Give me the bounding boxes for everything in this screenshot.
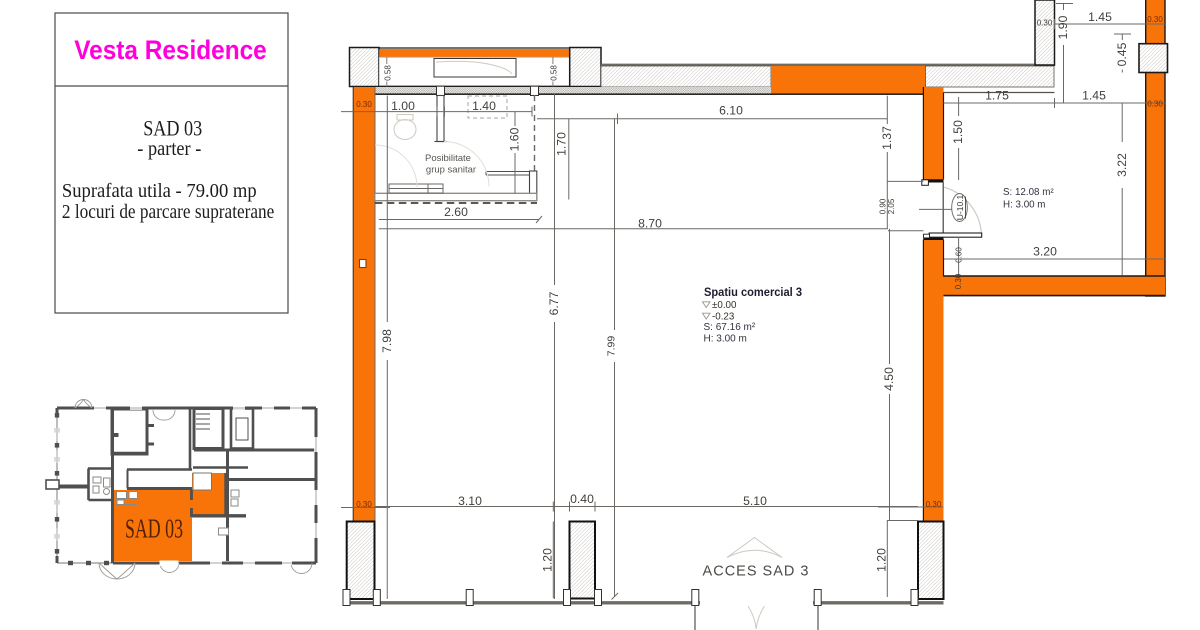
svg-text:2 locuri de parcare suprateran: 2 locuri de parcare supraterane <box>62 202 274 223</box>
svg-text:1.20: 1.20 <box>874 548 888 572</box>
svg-text:-0.23: -0.23 <box>712 311 735 322</box>
svg-text:SAD 03: SAD 03 <box>125 514 183 544</box>
svg-text:Spatiu comercial 3: Spatiu comercial 3 <box>704 287 802 299</box>
svg-text:0.58: 0.58 <box>384 65 393 81</box>
svg-text:U-10.1: U-10.1 <box>955 194 965 220</box>
svg-text:6.77: 6.77 <box>547 291 561 315</box>
svg-text:1.60: 1.60 <box>508 127 522 151</box>
svg-text:7.99: 7.99 <box>606 336 618 357</box>
svg-text:6.10: 6.10 <box>719 104 743 118</box>
svg-text:0.45: 0.45 <box>1115 42 1129 66</box>
svg-text:1.45: 1.45 <box>1088 10 1112 24</box>
svg-text:1.90: 1.90 <box>1056 15 1070 39</box>
svg-text:1.37: 1.37 <box>880 126 894 150</box>
svg-text:1.40: 1.40 <box>472 99 496 113</box>
svg-text:0.30: 0.30 <box>1147 15 1163 24</box>
svg-text:Vesta Residence: Vesta Residence <box>74 35 267 65</box>
svg-text:7.98: 7.98 <box>380 329 394 353</box>
svg-text:3.22: 3.22 <box>1115 153 1129 177</box>
svg-text:Suprafata utila - 79.00 mp: Suprafata utila - 79.00 mp <box>62 181 257 202</box>
svg-text:Posibilitate: Posibilitate <box>425 153 471 164</box>
svg-text:0.30: 0.30 <box>356 500 372 509</box>
svg-text:±0.00: ±0.00 <box>712 300 737 311</box>
svg-text:5.10: 5.10 <box>743 494 767 508</box>
svg-text:ACCES SAD 3: ACCES SAD 3 <box>703 564 810 580</box>
svg-text:8.70: 8.70 <box>638 216 662 230</box>
svg-text:0.30: 0.30 <box>1037 19 1053 28</box>
svg-text:0.60: 0.60 <box>955 247 964 263</box>
svg-text:grup sanitar: grup sanitar <box>426 165 476 176</box>
svg-text:0.30: 0.30 <box>926 500 942 509</box>
svg-text:- parter -: - parter - <box>137 136 201 160</box>
svg-text:0.58: 0.58 <box>550 65 559 81</box>
svg-text:H: 3.00 m: H: 3.00 m <box>704 334 747 345</box>
svg-text:0.40: 0.40 <box>570 492 594 506</box>
svg-text:1.75: 1.75 <box>985 89 1009 103</box>
svg-text:0.30: 0.30 <box>1147 100 1163 109</box>
svg-text:0.30: 0.30 <box>954 273 963 289</box>
svg-text:2.60: 2.60 <box>444 205 468 219</box>
svg-text:3.10: 3.10 <box>458 494 482 508</box>
svg-text:1.50: 1.50 <box>951 120 965 144</box>
svg-text:4.50: 4.50 <box>882 367 896 391</box>
svg-text:1.00: 1.00 <box>391 99 415 113</box>
svg-text:1.20: 1.20 <box>540 548 554 572</box>
svg-text:S: 67.16 m²: S: 67.16 m² <box>704 322 756 333</box>
svg-text:1.45: 1.45 <box>1082 89 1106 103</box>
svg-text:2.05: 2.05 <box>887 198 896 214</box>
svg-text:1.70: 1.70 <box>555 132 569 156</box>
svg-text:S: 12.08 m²: S: 12.08 m² <box>1003 187 1054 198</box>
svg-text:H: 3.00 m: H: 3.00 m <box>1003 200 1045 211</box>
svg-text:3.20: 3.20 <box>1033 245 1057 259</box>
svg-text:0.30: 0.30 <box>356 100 372 109</box>
